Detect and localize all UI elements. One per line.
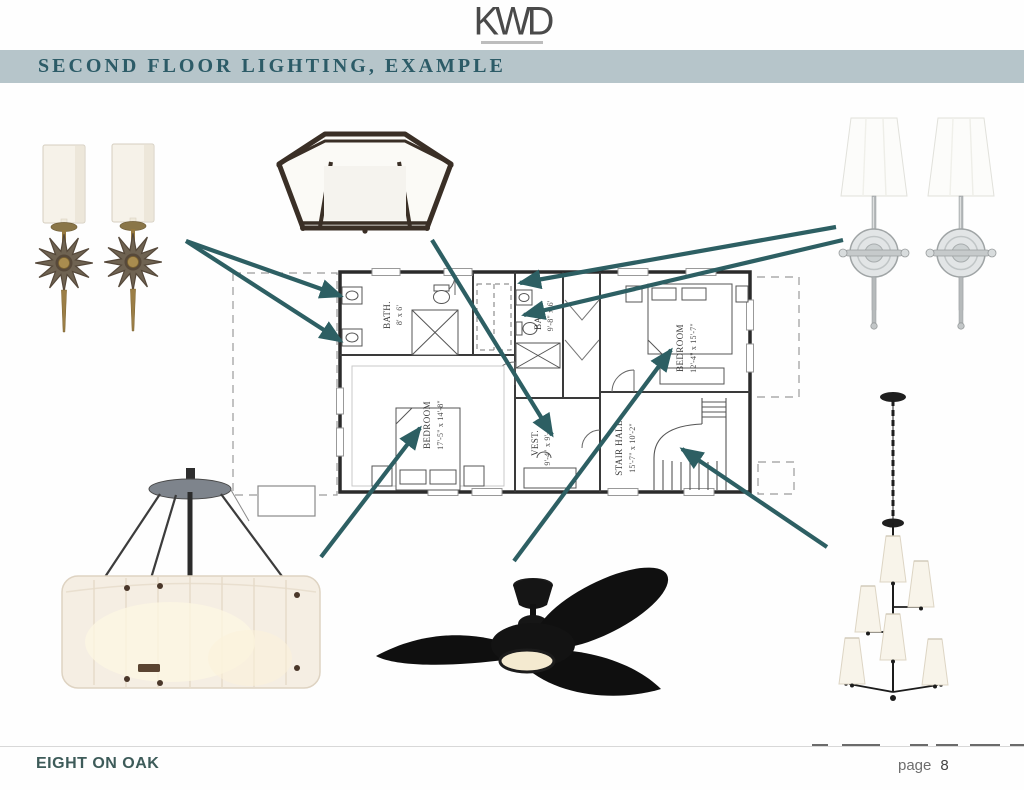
project-name: EIGHT ON OAK bbox=[36, 755, 159, 773]
room-label: BATH. bbox=[382, 301, 392, 329]
room-label: VEST. bbox=[530, 430, 540, 456]
arrow-tiered-vertical-chandelier-to-stair-hall bbox=[682, 449, 827, 547]
toilet-icon bbox=[516, 322, 522, 335]
footer-divider bbox=[0, 746, 1024, 747]
room-label: BEDROOM bbox=[422, 401, 432, 449]
fixture-sconce-pair-polished-nickel-image bbox=[839, 118, 996, 329]
fixture-tiered-vertical-chandelier-image bbox=[839, 392, 948, 701]
page-number: 8 bbox=[940, 757, 948, 774]
plan-callout-box bbox=[258, 486, 315, 516]
page-indicator: page8 bbox=[898, 757, 949, 774]
room-dims: 17'-5" x 14'-8" bbox=[436, 400, 445, 450]
room-dims: 15'-7" x 10'-2" bbox=[628, 423, 637, 473]
arrow-sconce-pair-antique-brass-to-bath-left-sink-top bbox=[186, 241, 341, 296]
room-label: STAIR HALL bbox=[614, 420, 624, 476]
fixture-sconce-pair-antique-brass-image bbox=[35, 144, 162, 332]
arrow-sconce-pair-antique-brass-to-bath-left-sink-bottom bbox=[186, 241, 341, 341]
room-dims: 8' x 6' bbox=[395, 305, 404, 326]
fixture-black-ceiling-fan-image bbox=[376, 552, 679, 696]
floor-plan: BATH. 8' x 6' BATH. 9'-8" x 6' BEDROOM 1… bbox=[231, 269, 799, 522]
presentation-canvas: BATH. 8' x 6' BATH. 9'-8" x 6' BEDROOM 1… bbox=[0, 0, 1024, 790]
room-dims: 9'-8" x 6' bbox=[546, 300, 555, 331]
room-label: BEDROOM bbox=[675, 324, 685, 372]
page-label: page bbox=[898, 757, 931, 774]
room-label: BATH. bbox=[533, 302, 543, 330]
presentation-page: KWD SECOND FLOOR LIGHTING, EXAMPLE bbox=[0, 0, 1024, 790]
fixture-hexagonal-flush-mount-image bbox=[276, 134, 453, 234]
room-dims: 12'-4" x 15'-7" bbox=[689, 323, 698, 373]
